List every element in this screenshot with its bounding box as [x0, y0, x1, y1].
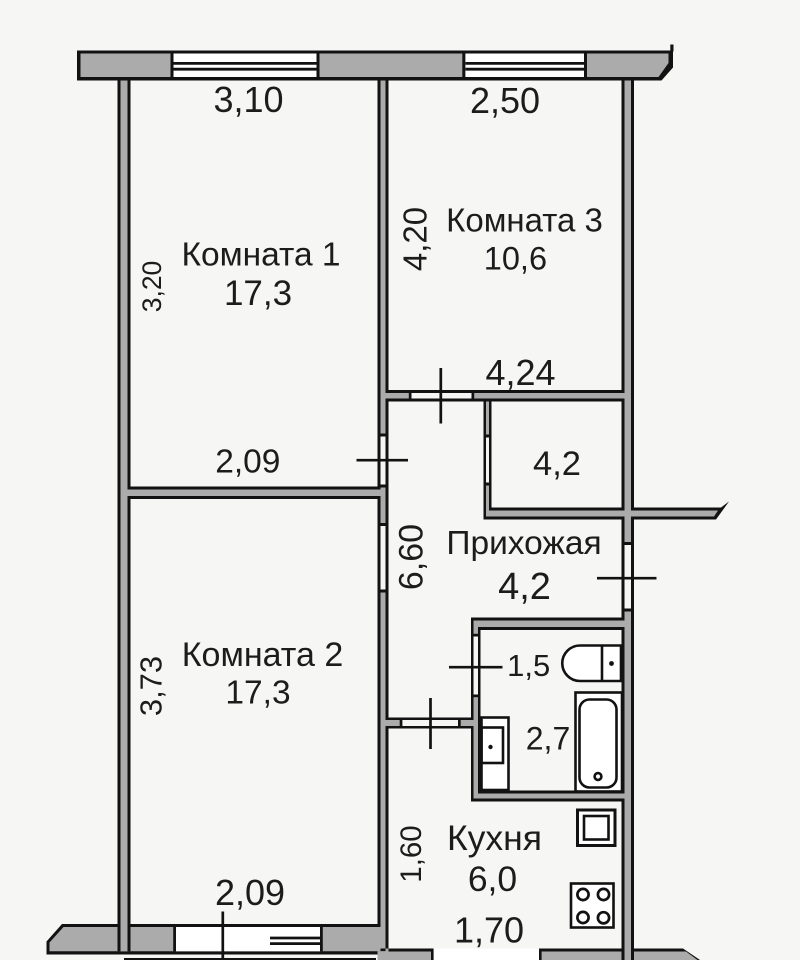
svg-text:Кухня: Кухня	[447, 818, 542, 858]
svg-text:3,20: 3,20	[137, 261, 167, 313]
svg-text:6,0: 6,0	[468, 859, 517, 899]
svg-text:4,2: 4,2	[498, 566, 551, 608]
svg-text:17,3: 17,3	[224, 274, 292, 313]
svg-text:2,09: 2,09	[215, 444, 280, 481]
svg-text:Прихожая: Прихожая	[446, 525, 601, 562]
svg-text:Комната 2: Комната 2	[182, 636, 343, 674]
svg-text:2,7: 2,7	[526, 721, 570, 757]
svg-text:4,24: 4,24	[485, 352, 555, 393]
svg-text:Комната 1: Комната 1	[181, 237, 340, 274]
svg-text:2,09: 2,09	[215, 872, 285, 913]
svg-text:1,60: 1,60	[395, 825, 428, 882]
svg-text:10,6: 10,6	[484, 241, 547, 277]
svg-text:Комната 3: Комната 3	[446, 202, 603, 239]
svg-text:1,70: 1,70	[454, 910, 524, 951]
svg-text:2,50: 2,50	[470, 80, 540, 121]
svg-text:17,3: 17,3	[225, 675, 290, 712]
svg-text:4,20: 4,20	[397, 207, 434, 271]
svg-text:4,2: 4,2	[533, 445, 581, 483]
svg-text:1,5: 1,5	[507, 648, 550, 683]
svg-text:3,10: 3,10	[213, 79, 283, 120]
svg-text:3,73: 3,73	[134, 656, 169, 716]
svg-text:6,60: 6,60	[393, 524, 431, 590]
